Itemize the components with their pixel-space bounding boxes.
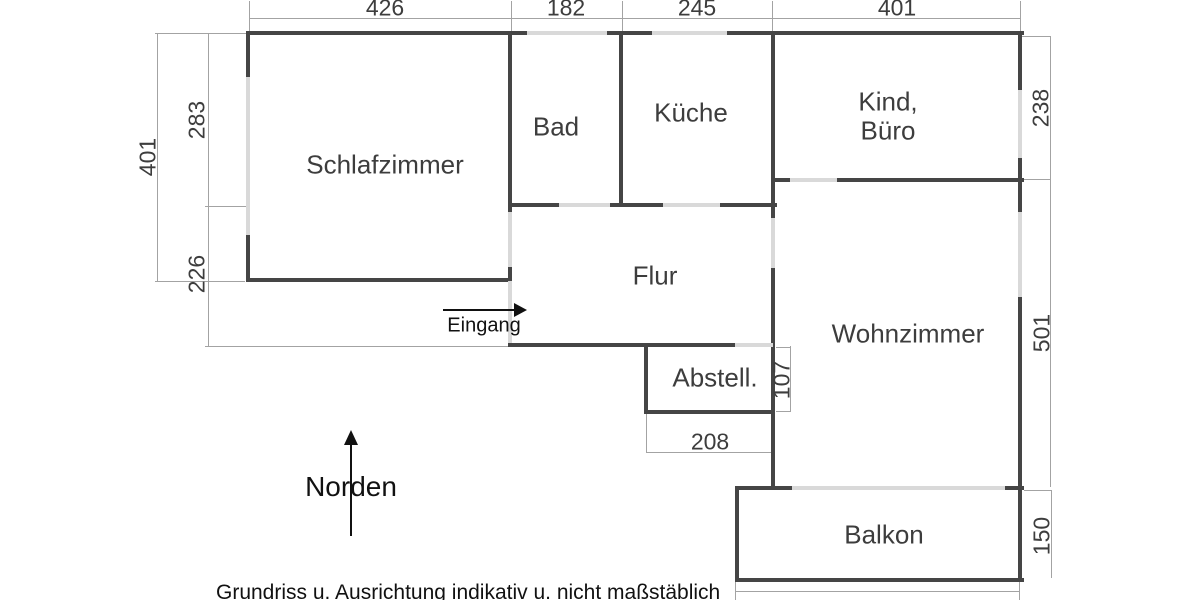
wall-segment xyxy=(1018,158,1022,212)
wall-segment xyxy=(508,267,512,281)
wall-segment xyxy=(644,410,775,414)
wall-segment xyxy=(607,31,652,35)
room-label-wohnzimmer: Wohnzimmer xyxy=(832,320,985,349)
dim-label-right-501: 501 xyxy=(1029,314,1056,352)
door-opening xyxy=(790,178,837,182)
dim-label-top-401: 401 xyxy=(878,0,916,22)
dim-line xyxy=(205,346,510,347)
dim-line xyxy=(776,411,790,412)
window-segment xyxy=(527,31,607,35)
wall-segment xyxy=(1018,297,1022,490)
dim-line xyxy=(511,1,512,31)
window-segment xyxy=(1018,90,1022,158)
wall-segment xyxy=(508,31,512,212)
room-label-schlafzimmer: Schlafzimmer xyxy=(306,151,463,180)
dim-label-top-426: 426 xyxy=(366,0,404,22)
dim-label-abstell-107: 107 xyxy=(769,361,796,399)
door-opening xyxy=(663,203,720,207)
room-label-abstellraum: Abstell. xyxy=(672,364,757,393)
dim-line xyxy=(208,33,209,347)
window-segment xyxy=(652,31,727,35)
wall-segment xyxy=(837,178,1024,182)
dim-line xyxy=(772,1,773,31)
room-label-bad: Bad xyxy=(533,113,579,142)
wall-segment xyxy=(735,486,739,582)
entrance-arrow xyxy=(443,309,516,311)
wall-segment xyxy=(1018,31,1022,90)
dim-line xyxy=(1019,582,1020,600)
wall-segment xyxy=(735,578,1024,582)
room-label-balkon: Balkon xyxy=(844,521,924,550)
wall-segment xyxy=(508,203,559,207)
dim-line xyxy=(1022,36,1050,37)
dim-line xyxy=(1024,490,1052,491)
wall-segment xyxy=(246,31,527,35)
compass-label: Norden xyxy=(305,471,397,503)
floor-plan: Schlafzimmer Bad Küche Kind, Büro Flur W… xyxy=(0,0,1200,600)
room-label-kind-line1: Kind, xyxy=(858,86,917,116)
dim-label-left-226: 226 xyxy=(184,255,211,293)
room-label-kind-buero: Kind, Büro xyxy=(858,87,917,144)
wall-segment xyxy=(644,345,648,414)
wall-segment xyxy=(246,31,250,77)
dim-label-top-245: 245 xyxy=(678,0,716,22)
window-segment xyxy=(1018,212,1022,297)
dim-label-right-150: 150 xyxy=(1029,517,1056,555)
room-label-kueche: Küche xyxy=(654,99,728,128)
window-segment xyxy=(246,77,250,235)
door-opening xyxy=(559,203,610,207)
wall-segment xyxy=(735,486,792,490)
dim-line xyxy=(249,1,250,31)
wall-segment xyxy=(246,235,250,282)
dim-label-left-401: 401 xyxy=(135,138,162,176)
dim-label-abstell-208: 208 xyxy=(691,429,729,456)
dim-line xyxy=(1020,1,1021,31)
wall-segment xyxy=(1018,486,1022,582)
door-opening xyxy=(508,212,512,267)
entrance-label: Eingang xyxy=(447,315,520,338)
dim-label-top-182: 182 xyxy=(547,0,585,22)
disclaimer-text: Grundriss u. Ausrichtung indikativ u. ni… xyxy=(216,581,720,600)
window-segment xyxy=(792,486,1005,490)
dim-label-right-238: 238 xyxy=(1028,89,1055,127)
wall-segment xyxy=(246,278,512,282)
dim-line xyxy=(735,591,1020,592)
wall-segment xyxy=(771,178,790,182)
dim-line xyxy=(1022,179,1050,180)
wall-segment xyxy=(610,203,663,207)
wall-segment xyxy=(720,203,777,207)
room-label-flur: Flur xyxy=(633,262,678,291)
dim-line xyxy=(776,347,790,348)
dim-line xyxy=(155,33,248,34)
door-opening xyxy=(735,343,773,347)
dim-line xyxy=(622,1,623,31)
wall-segment xyxy=(619,33,623,205)
wall-segment xyxy=(508,343,735,347)
north-arrowhead-icon xyxy=(344,430,358,445)
room-label-kind-line2: Büro xyxy=(861,115,916,145)
dim-line xyxy=(646,412,647,453)
door-opening xyxy=(771,218,775,268)
dim-label-left-283: 283 xyxy=(184,101,211,139)
dim-line xyxy=(735,582,736,600)
wall-segment xyxy=(771,31,775,218)
dim-line xyxy=(205,206,248,207)
